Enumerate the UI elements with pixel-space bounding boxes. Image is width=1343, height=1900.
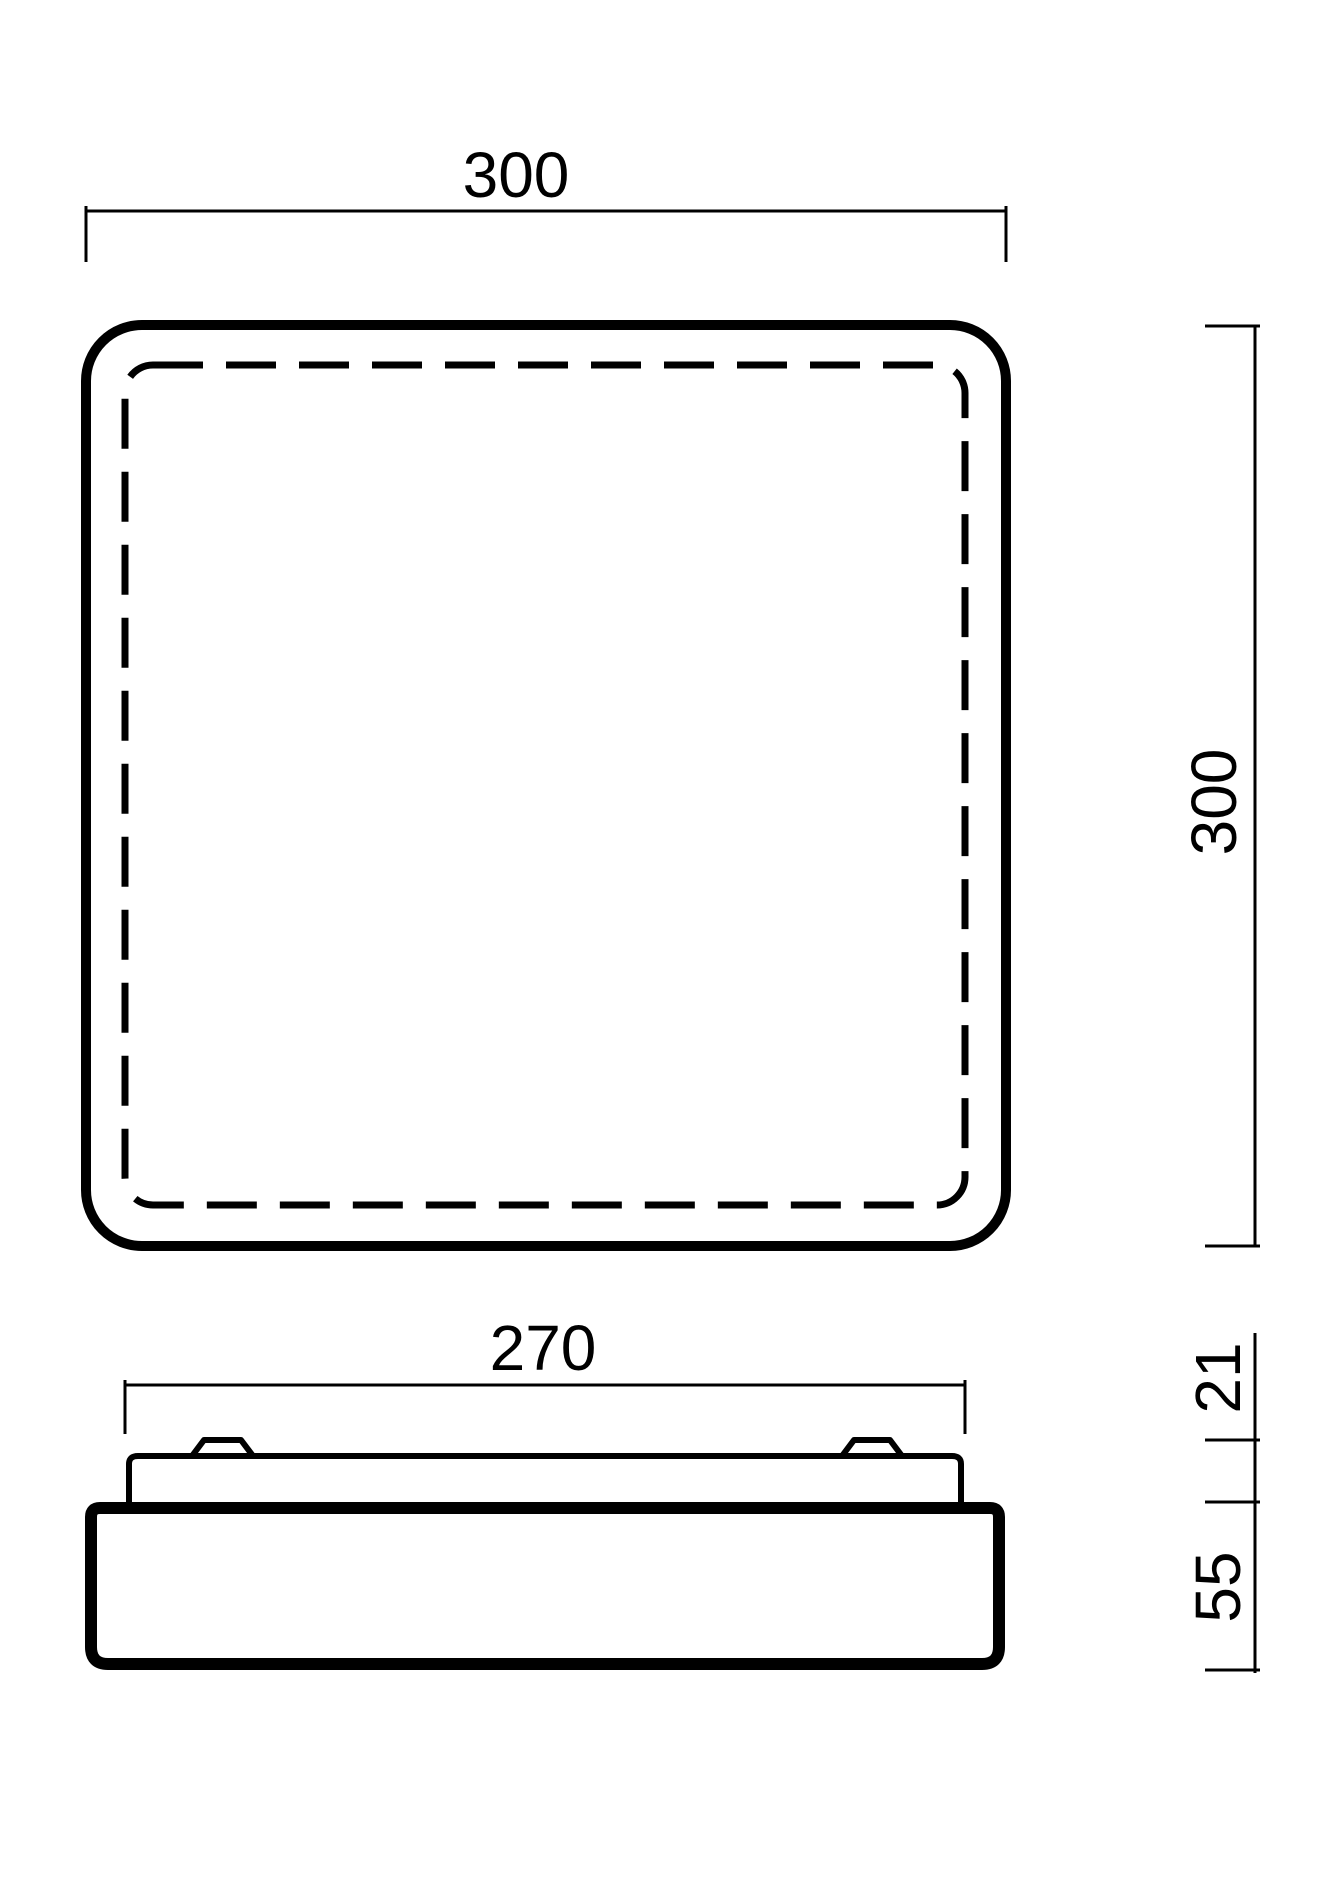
- dimension-label-plan-width: 300: [463, 139, 570, 211]
- technical-drawing-page: 300 300 270: [0, 0, 1343, 1900]
- dimension-mounting-plate-width: 270: [125, 1312, 965, 1434]
- dimension-plan-width: 300: [86, 139, 1006, 262]
- dimension-label-mounting-plate-width: 270: [490, 1312, 597, 1384]
- dimension-plan-height: 300: [1178, 326, 1260, 1246]
- side-view: [91, 1440, 999, 1664]
- dimension-label-diffuser-body-height: 55: [1182, 1551, 1254, 1622]
- luminaire-dimension-drawing: 300 300 270: [0, 0, 1343, 1900]
- plan-view: [86, 325, 1006, 1246]
- dimension-label-plan-height: 300: [1178, 749, 1250, 856]
- dimension-label-mounting-plate-height: 21: [1182, 1342, 1254, 1413]
- plan-view-diffuser-hidden-edge-dashed: [125, 365, 965, 1205]
- plan-view-outer-outline: [86, 325, 1006, 1246]
- side-view-mounting-plate: [129, 1456, 961, 1502]
- dimension-side-heights: 21 55: [1182, 1333, 1260, 1673]
- side-view-diffuser-body: [91, 1508, 999, 1664]
